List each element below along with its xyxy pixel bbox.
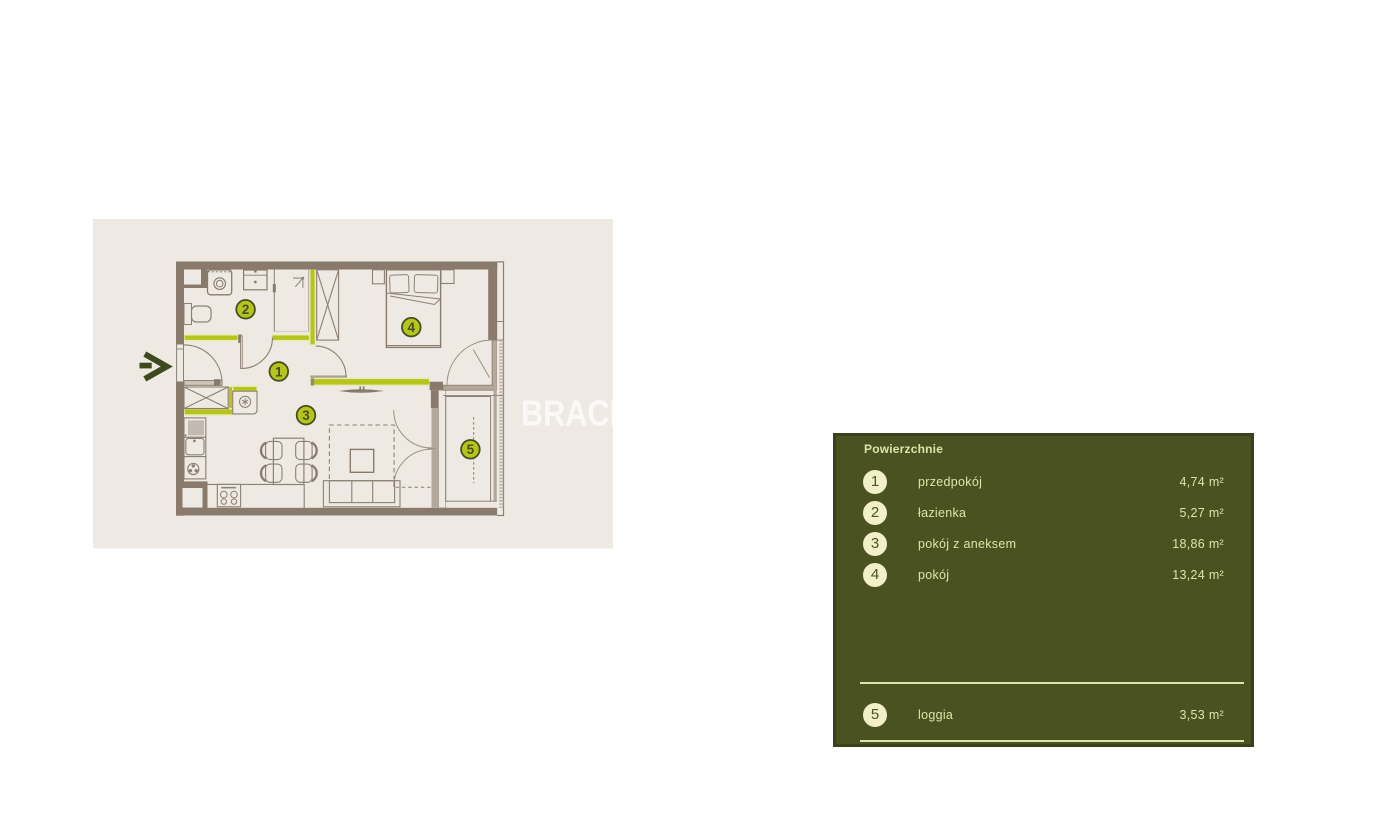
svg-text:3: 3 (302, 408, 310, 423)
svg-text:5: 5 (467, 442, 475, 457)
svg-text:1: 1 (275, 364, 283, 379)
svg-text:4: 4 (408, 320, 416, 335)
svg-text:2: 2 (242, 302, 250, 317)
svg-text:BRACI: BRACI (521, 393, 618, 434)
